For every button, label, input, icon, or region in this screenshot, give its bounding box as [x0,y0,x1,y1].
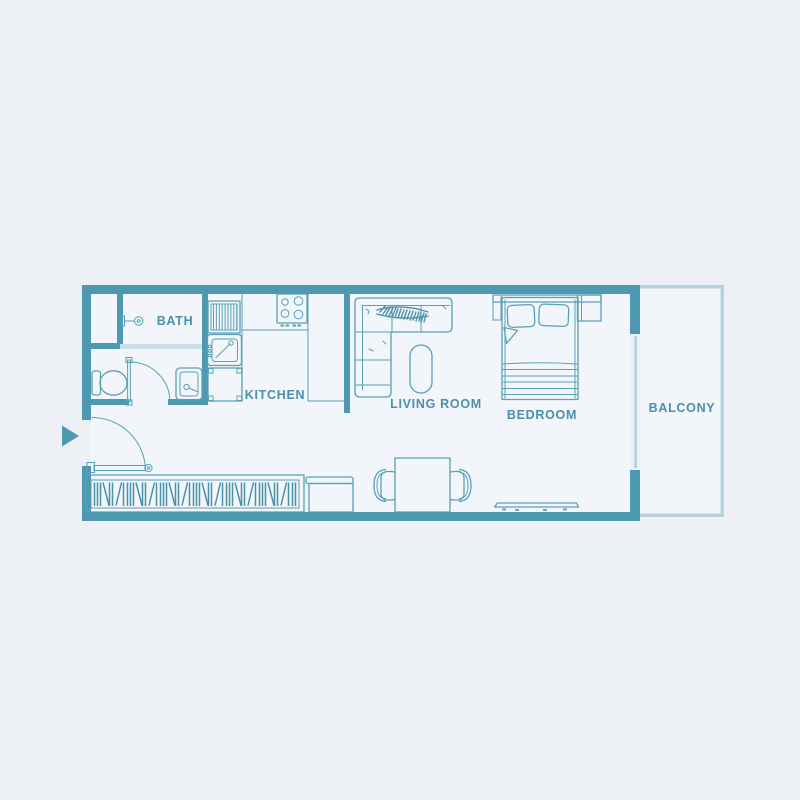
balcony-wall-lower [630,470,640,521]
entry-arrow-icon [62,426,79,447]
bath-glass-divider [120,344,205,349]
floorplan: BATH KITCHEN LIVING ROOM BEDROOM BALCONY [0,0,800,800]
room-label-bedroom: BEDROOM [507,408,577,422]
room-label-bath: BATH [157,314,194,328]
bath-mid-wall [91,343,120,349]
top-wall [82,285,640,294]
hanging-clothes-pattern [93,483,297,507]
balcony-railing-right [721,285,725,517]
shower-partition-wall [117,293,123,346]
balcony-railing-bottom [640,514,724,518]
bath-door-wall-left [91,399,129,405]
balcony-sliding-window [635,336,637,468]
room-label-kitchen: KITCHEN [245,388,305,402]
bottom-wall [82,512,640,521]
balcony-wall-upper [630,285,640,334]
balcony-railing-top [640,285,724,289]
room-label-balcony: BALCONY [649,401,716,415]
left-wall-upper [82,285,91,420]
living-room-wall [344,293,350,413]
room-label-living-room: LIVING ROOM [390,397,482,411]
